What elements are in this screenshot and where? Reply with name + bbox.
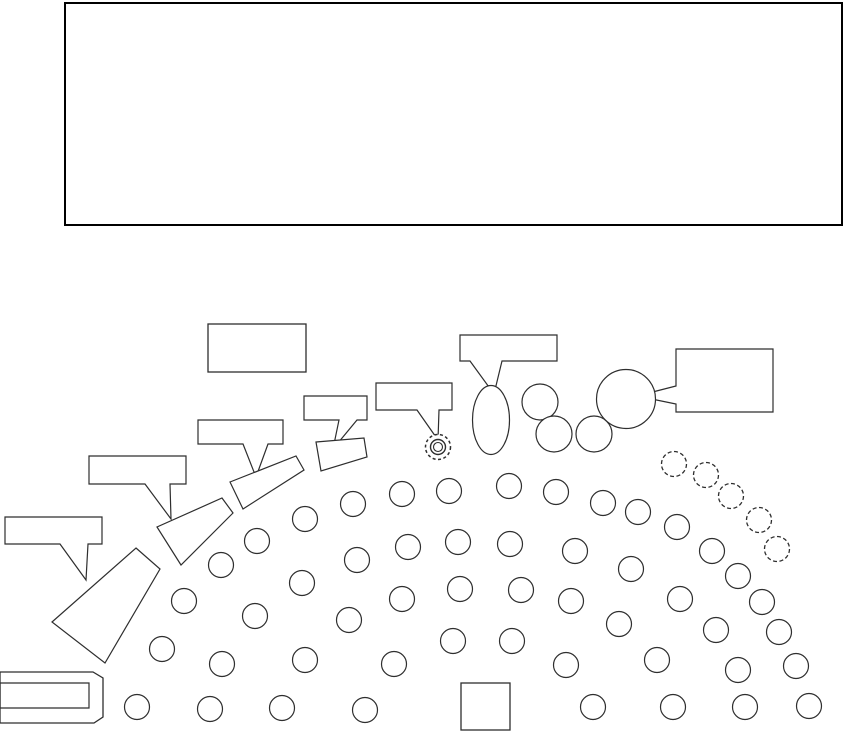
optional-seat-circle[interactable]: [765, 537, 790, 562]
seat-circle[interactable]: [448, 577, 473, 602]
seat-circle[interactable]: [396, 535, 421, 560]
seat-circle[interactable]: [784, 654, 809, 679]
seat-circle[interactable]: [353, 698, 378, 723]
seat-circle[interactable]: [245, 529, 270, 554]
seat-circle[interactable]: [497, 474, 522, 499]
grand-piano[interactable]: [0, 672, 103, 723]
seat-circle[interactable]: [544, 480, 569, 505]
seat-circle[interactable]: [243, 604, 268, 629]
seat-circle[interactable]: [607, 612, 632, 637]
orchestra-seating-diagram: [0, 0, 846, 733]
section-angled-3[interactable]: [316, 438, 367, 471]
seat-circle[interactable]: [554, 653, 579, 678]
seat-circle[interactable]: [767, 620, 792, 645]
callout-label-2[interactable]: [89, 456, 186, 519]
seat-circle[interactable]: [661, 695, 686, 720]
seat-circle[interactable]: [345, 548, 370, 573]
optional-seat-circle[interactable]: [747, 508, 772, 533]
diagram-canvas: [0, 0, 846, 733]
large-section-circle[interactable]: [597, 370, 656, 429]
seat-circle[interactable]: [198, 697, 223, 722]
seat-circle[interactable]: [290, 571, 315, 596]
stage-rect[interactable]: [65, 3, 842, 225]
seat-circle[interactable]: [341, 492, 366, 517]
seat-circle[interactable]: [500, 629, 525, 654]
seat-circle[interactable]: [700, 539, 725, 564]
seat-circle[interactable]: [733, 695, 758, 720]
seat-circle[interactable]: [382, 652, 407, 677]
conductor-podium[interactable]: [461, 683, 510, 730]
seat-circle[interactable]: [390, 587, 415, 612]
seat-circle[interactable]: [270, 696, 295, 721]
medium-section-circle[interactable]: [522, 384, 558, 420]
seat-circle[interactable]: [498, 532, 523, 557]
section-angled-2[interactable]: [230, 456, 304, 509]
seat-circle[interactable]: [437, 479, 462, 504]
seat-circle[interactable]: [509, 578, 534, 603]
optional-seat-circle[interactable]: [694, 463, 719, 488]
seat-circle[interactable]: [150, 637, 175, 662]
section-trapezoid[interactable]: [52, 548, 160, 663]
seat-circle[interactable]: [626, 500, 651, 525]
callout-label-1[interactable]: [5, 517, 102, 580]
seat-circle[interactable]: [645, 648, 670, 673]
seat-circle[interactable]: [704, 618, 729, 643]
seat-circle[interactable]: [446, 530, 471, 555]
seat-circle[interactable]: [125, 695, 150, 720]
medium-section-circle[interactable]: [536, 416, 572, 452]
optional-seat-circle[interactable]: [719, 484, 744, 509]
callout-label-5[interactable]: [376, 383, 452, 440]
seat-circle[interactable]: [563, 539, 588, 564]
seat-circle[interactable]: [797, 694, 822, 719]
target-symbol-outer[interactable]: [426, 435, 451, 460]
seat-circle[interactable]: [591, 491, 616, 516]
seat-circle[interactable]: [337, 608, 362, 633]
seat-circle[interactable]: [750, 590, 775, 615]
seat-circle[interactable]: [210, 652, 235, 677]
seat-circle[interactable]: [726, 564, 751, 589]
seat-circle[interactable]: [559, 589, 584, 614]
seat-circle[interactable]: [293, 507, 318, 532]
seat-circle[interactable]: [209, 553, 234, 578]
optional-seat-circle[interactable]: [662, 452, 687, 477]
seat-circle[interactable]: [390, 482, 415, 507]
seat-circle[interactable]: [665, 515, 690, 540]
seat-circle[interactable]: [726, 658, 751, 683]
seat-circle[interactable]: [441, 629, 466, 654]
seat-circle[interactable]: [581, 695, 606, 720]
seat-circle[interactable]: [619, 557, 644, 582]
callout-label-7[interactable]: [637, 349, 773, 412]
seat-circle[interactable]: [668, 587, 693, 612]
soloist-ellipse[interactable]: [473, 386, 510, 455]
seat-circle[interactable]: [293, 648, 318, 673]
section-label-box[interactable]: [208, 324, 306, 372]
seat-circle[interactable]: [172, 589, 197, 614]
